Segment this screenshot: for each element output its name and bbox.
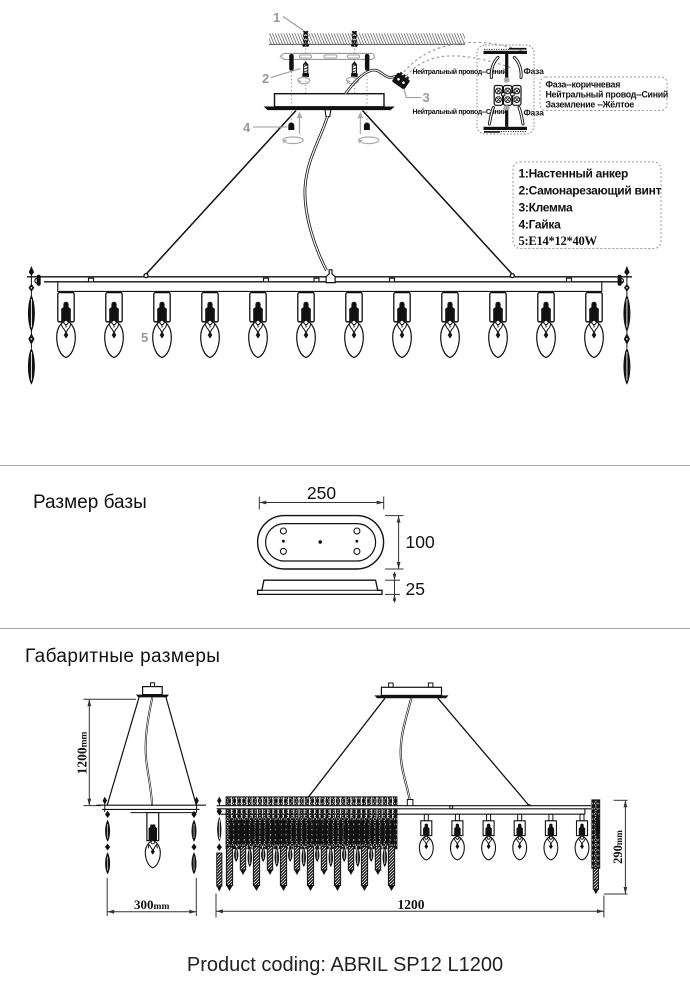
svg-text:Product coding: ABRIL SP12 L12: Product coding: ABRIL SP12 L1200 (187, 954, 503, 976)
svg-text:1:Настенный анкер: 1:Настенный анкер (519, 167, 629, 181)
svg-text:Фаза--коричневая: Фаза--коричневая (546, 80, 621, 90)
svg-text:290mm: 290mm (611, 830, 625, 864)
svg-text:3: 3 (423, 90, 430, 105)
svg-text:5:E14*12*40W: 5:E14*12*40W (519, 234, 598, 248)
svg-text:Габаритные размеры: Габаритные размеры (25, 646, 220, 667)
svg-text:1200mm: 1200mm (75, 732, 90, 775)
svg-text:300mm: 300mm (134, 897, 169, 912)
svg-text:25: 25 (406, 579, 425, 599)
svg-text:2: 2 (262, 71, 269, 86)
svg-text:Заземление --Жёлтое: Заземление --Жёлтое (546, 100, 635, 110)
svg-text:4: 4 (243, 120, 251, 135)
svg-text:1200: 1200 (398, 897, 425, 912)
svg-text:1: 1 (273, 10, 280, 25)
svg-text:3:Клемма: 3:Клемма (519, 201, 573, 215)
svg-text:4:Гайка: 4:Гайка (519, 218, 562, 232)
svg-text:Фаза: Фаза (524, 66, 545, 76)
svg-text:Размер базы: Размер базы (33, 492, 147, 513)
svg-text:250: 250 (307, 483, 336, 503)
svg-text:5: 5 (141, 330, 148, 345)
svg-text:Фаза: Фаза (524, 108, 545, 118)
svg-text:100: 100 (406, 532, 435, 552)
svg-text:2:Самонарезающий винт: 2:Самонарезающий винт (519, 184, 662, 198)
svg-text:Нейтральный провод--Синий: Нейтральный провод--Синий (546, 90, 669, 100)
